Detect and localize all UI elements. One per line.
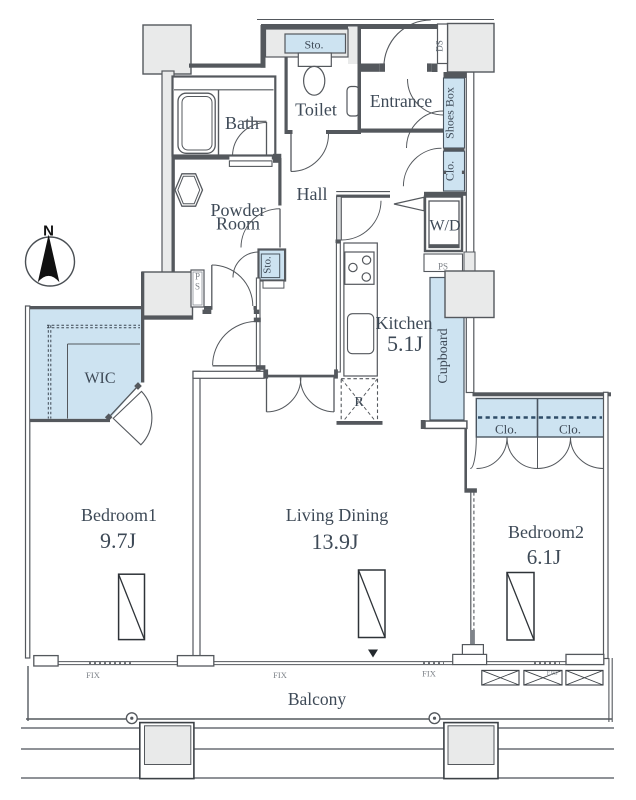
svg-text:Room: Room bbox=[216, 214, 260, 234]
svg-text:R: R bbox=[354, 395, 364, 410]
svg-text:FIX: FIX bbox=[422, 669, 436, 679]
svg-text:Bath: Bath bbox=[225, 113, 259, 133]
svg-text:Bedroom2: Bedroom2 bbox=[508, 522, 584, 542]
svg-text:PS: PS bbox=[438, 262, 448, 272]
svg-text:Balcony: Balcony bbox=[288, 689, 347, 709]
svg-text:P: P bbox=[195, 272, 200, 282]
svg-text:Hall: Hall bbox=[297, 184, 328, 204]
svg-text:6.1J: 6.1J bbox=[527, 545, 561, 569]
svg-text:Clo.: Clo. bbox=[495, 422, 517, 437]
svg-text:EPS: EPS bbox=[546, 670, 558, 677]
svg-text:Living Dining: Living Dining bbox=[286, 505, 389, 525]
svg-text:WIC: WIC bbox=[84, 370, 115, 387]
svg-text:13.9J: 13.9J bbox=[311, 529, 359, 554]
svg-text:Sto.: Sto. bbox=[262, 256, 274, 274]
svg-text:DS: DS bbox=[435, 40, 445, 52]
svg-text:Entrance: Entrance bbox=[370, 91, 432, 111]
svg-text:FIX: FIX bbox=[86, 670, 100, 680]
svg-text:Sto.: Sto. bbox=[304, 38, 323, 52]
svg-text:W/D: W/D bbox=[429, 218, 460, 235]
svg-text:N: N bbox=[43, 223, 54, 240]
svg-text:FIX: FIX bbox=[273, 670, 287, 680]
svg-text:Shoes Box: Shoes Box bbox=[443, 87, 457, 139]
svg-text:S: S bbox=[195, 282, 200, 292]
svg-text:Kitchen: Kitchen bbox=[376, 313, 433, 333]
svg-text:Toilet: Toilet bbox=[295, 100, 337, 120]
svg-text:Clo.: Clo. bbox=[559, 422, 581, 437]
svg-text:9.7J: 9.7J bbox=[100, 528, 137, 553]
svg-text:Cupboard: Cupboard bbox=[436, 328, 451, 383]
svg-text:5.1J: 5.1J bbox=[387, 331, 424, 356]
svg-text:Bedroom1: Bedroom1 bbox=[81, 505, 157, 525]
